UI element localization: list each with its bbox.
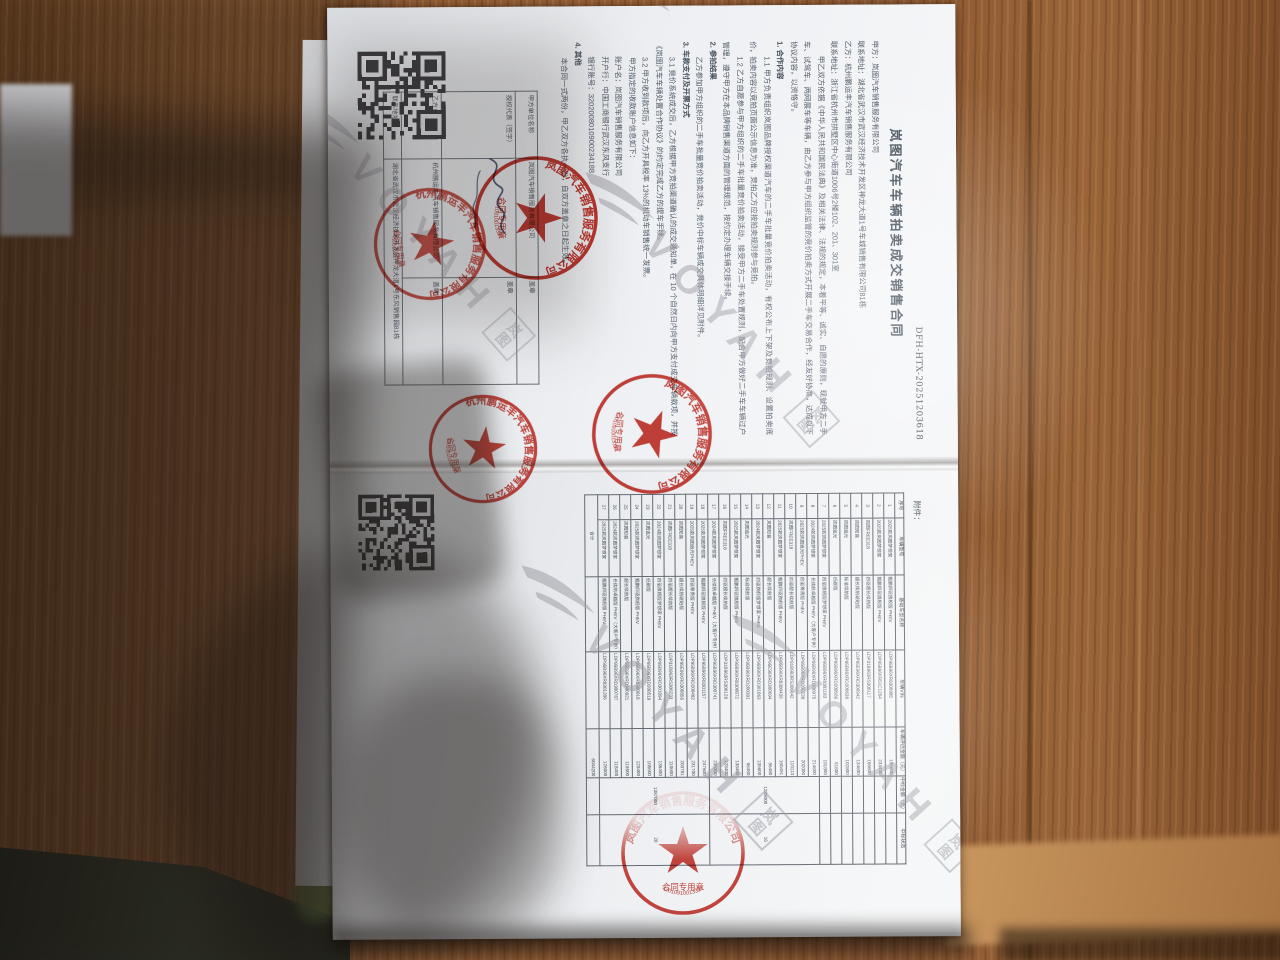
vehicle-cell: LDP31B963RS306128 xyxy=(720,651,731,728)
contract-paragraph: 乙方参加甲方组织的二手车批量竞价拍卖活动，竞价中标车辆成交具体明细详见附件。 xyxy=(692,42,708,436)
vehicle-cell: 鲲鹏四驱旗舰版 PHEV xyxy=(698,576,709,651)
seal-cell: 盖章 xyxy=(402,278,443,385)
vehicle-cell: 19 xyxy=(686,494,697,519)
vehicle-cell: 2024款岚图梦想家 xyxy=(609,520,620,577)
table-header: 车辆型号 xyxy=(895,518,904,575)
floor xyxy=(0,840,350,960)
vehicle-cell: 岚图追光 xyxy=(840,518,851,575)
vehicle-cell: LDP95B96XRD300741 xyxy=(709,651,720,728)
wood-plank-seam xyxy=(1028,0,1032,960)
vehicle-cell: 鲲鹏四驱旗舰版 PHEV xyxy=(885,575,896,650)
vehicle-cell: 2024款岚图梦想家 xyxy=(807,518,818,575)
empty-cell xyxy=(842,813,853,864)
empty-cell xyxy=(853,776,864,813)
vehicle-cell: 9 xyxy=(796,494,807,519)
vehicle-cell: 2025款岚图梦想家 xyxy=(631,520,642,577)
contract-number: DFH-HTX-20251203618 xyxy=(913,327,924,441)
total-cell: 6044200 xyxy=(587,729,600,778)
vehicle-cell: 1 xyxy=(884,493,895,518)
empty-cell xyxy=(820,776,831,813)
vehicle-cell: 岚图FREE318 xyxy=(664,519,675,576)
bid-amount-cell: 1387000 xyxy=(600,777,710,815)
vehicle-row: 5岚图追光标准续航版LDP95B96XRD200638102800 xyxy=(840,493,853,864)
vehicle-cell: 岚图知音 xyxy=(620,520,631,577)
empty-cell xyxy=(831,813,842,864)
vehicle-cell: 鲲鹏四驱旗舰版 PHEV xyxy=(874,575,885,650)
vehicle-cell: 长续航卓越版 PHEV（大客户专供） xyxy=(808,575,819,650)
vehicle-cell: 岚图FREE318 xyxy=(785,519,796,576)
page1-sheet: DFH-HTX-20251203618 岚图汽车车辆拍卖成交销售合同 甲方：岚图… xyxy=(327,4,958,466)
underlying-paper-corner xyxy=(0,84,72,236)
signature-label: 授权代表（签字） xyxy=(441,91,515,158)
total-cell xyxy=(587,815,600,866)
vehicle-cell: 2025款岚图梦想家 xyxy=(873,518,884,575)
vehicle-cell: 110113 xyxy=(787,728,798,777)
vehicle-cell: 2024款岚图梦想家 xyxy=(653,519,664,576)
contract-page-2: 附件： 序号车辆型号基础车型名称车辆VIN车辆评估金额（元）中标金额（元）中标状… xyxy=(330,466,961,936)
vehicle-cell: 四驱旗舰版梦想家 PHEV xyxy=(819,575,830,650)
vehicle-cell: 13 xyxy=(752,494,763,519)
vehicle-cell: 15 xyxy=(730,494,741,519)
vehicle-cell: 202000 xyxy=(798,727,809,776)
vehicle-cell: 低碳版 xyxy=(643,576,654,651)
vehicle-cell: 超长续航琥珀版 xyxy=(676,576,687,651)
vehicle-cell: 26 xyxy=(609,495,620,520)
vehicle-cell: 2025款岚图梦想家 xyxy=(774,519,785,576)
vehicle-cell: 2025款岚图梦想家 xyxy=(818,518,829,575)
vehicle-cell: 11 xyxy=(774,494,785,519)
vehicle-cell: 17 xyxy=(708,494,719,519)
table-header: 序号 xyxy=(895,493,904,518)
vehicle-cell: 10 xyxy=(785,494,796,519)
vehicle-cell: 118400 xyxy=(611,729,622,778)
vehicle-cell: 21 xyxy=(664,494,675,519)
vehicle-cell: 16 xyxy=(719,494,730,519)
vehicle-cell: 岚图追光 xyxy=(829,518,840,575)
contract-paragraph: 本合同一式两份，甲乙双方各执一份，自双方盖章之日起生效。 xyxy=(557,42,573,436)
vehicle-cell: 4 xyxy=(851,493,862,518)
vehicle-cell: LDP95B96XR8300985 xyxy=(885,650,896,727)
vehicle-cell: 7 xyxy=(818,493,829,518)
vehicle-cell: LDP95B96XR8300872 xyxy=(731,651,742,728)
contract-paper: DFH-HTX-20251203618 岚图汽车车辆拍卖成交销售合同 甲方：岚图… xyxy=(327,4,961,940)
left-edge-shadow xyxy=(0,108,373,960)
vehicle-cell: 160491 xyxy=(776,728,787,777)
empty-cell xyxy=(864,813,875,864)
signature-value: 岚图汽车销售服务有限公司 xyxy=(516,158,539,277)
vehicle-cell: 27 xyxy=(598,495,609,520)
vehicle-row: 6岚图追光低碳版LDP95B96XRD20056691800 xyxy=(829,493,842,864)
vehicle-cell: 2024款岚图梦想家 xyxy=(708,519,719,576)
total-cell xyxy=(587,778,600,815)
vehicle-row: 3岚图FREE318四驱超长续航版LDP31B963RS306117166600 xyxy=(862,493,875,864)
vehicle-cell: 8 xyxy=(807,493,818,518)
vehicle-cell: 23 xyxy=(642,494,653,519)
vehicle-cell: 24 xyxy=(631,495,642,520)
wood-plank-seam xyxy=(1138,0,1140,960)
vehicle-cell: 2025款岚图梦想家 xyxy=(730,519,741,576)
vehicle-cell: 214600 xyxy=(809,727,820,776)
vehicle-cell: 20 xyxy=(675,494,686,519)
vehicle-cell: 四驱旗舰版梦想家 PHEV xyxy=(654,576,665,651)
total-row: 合计6044200 xyxy=(585,495,600,866)
vehicle-cell: 129400 xyxy=(633,729,644,778)
vehicle-cell: 2024款岚图梦想家 xyxy=(752,519,763,576)
vehicle-row: 4岚图知音超长续航琥珀版LDP95E96XRD300942134600 xyxy=(851,493,864,864)
vehicle-cell: 岚图追光 xyxy=(741,519,752,576)
empty-cell xyxy=(831,776,842,813)
photo-scene: DFH-HTX-20251203618 岚图汽车车辆拍卖成交销售合同 甲方：岚图… xyxy=(0,0,1280,960)
vehicle-cell: 四驱尊贵版 PHEV xyxy=(687,576,698,651)
vehicle-cell: LDP95B96XR51C1264 xyxy=(874,650,885,727)
desk-edge-shadow xyxy=(1000,928,1280,960)
vehicle-cell: 四驱超长续航版 xyxy=(665,576,676,651)
contract-paragraph: 甲方：岚图汽车销售服务有限公司 xyxy=(868,41,884,435)
vehicle-cell: 岚图知音 xyxy=(851,518,862,575)
desk-edge-highlight xyxy=(943,834,1280,946)
vehicle-cell: 22 xyxy=(653,494,664,519)
qr-code xyxy=(358,494,434,570)
vehicle-cell: 标准续航版 xyxy=(841,575,852,650)
vehicle-cell: 5 xyxy=(840,493,851,518)
vehicle-cell: 2025款岚图梦想家 xyxy=(697,519,708,576)
vehicle-cell: 岚图FREE318 xyxy=(862,518,873,575)
attachment-label: 附件： xyxy=(911,500,922,524)
desk-corner-shade xyxy=(0,0,380,200)
empty-cell xyxy=(886,813,897,864)
handwritten-signature xyxy=(468,153,513,249)
vehicle-cell: 岚图知音 xyxy=(763,519,774,576)
vehicle-cell: 2025款岚图追光PHEV xyxy=(686,519,697,576)
vehicle-cell: 3 xyxy=(862,493,873,518)
vehicle-cell: 6 xyxy=(829,493,840,518)
table-header: 车辆VIN xyxy=(896,650,905,727)
vehicle-cell: 14 xyxy=(741,494,752,519)
vehicle-cell: 18 xyxy=(697,494,708,519)
vehicle-cell: 岚图FREE318 xyxy=(719,519,730,576)
page2-sheet: 附件： 序号车辆型号基础车型名称车辆VIN车辆评估金额（元）中标金额（元）中标状… xyxy=(330,466,961,936)
bid-status-cell: 20 xyxy=(600,814,710,866)
vehicle-cell: 2025款岚图梦想家 xyxy=(884,518,895,575)
vehicle-cell: LDP31B963RS306117 xyxy=(863,650,874,727)
vehicle-cell: 2025款岚图追光PHEV xyxy=(796,519,807,576)
table-header: 基础车型名称 xyxy=(896,575,905,650)
vehicle-cell: 25 xyxy=(620,495,631,520)
empty-cell xyxy=(842,776,853,813)
contract-paragraph: 乙方：杭州鹏运丰汽车销售服务有限公司 xyxy=(841,41,857,435)
vehicle-cell: 四驱尊贵版 PHEV xyxy=(797,576,808,651)
contract-title: 岚图汽车车辆拍卖成交销售合同 xyxy=(886,4,908,462)
vehicle-cell: 四驱超长续航版 xyxy=(863,575,874,650)
vehicle-cell: 长续航卓越版 PHEV（大客户专供） xyxy=(709,576,720,651)
empty-cell xyxy=(820,813,831,864)
empty-cell xyxy=(853,813,864,864)
contract-page-1: DFH-HTX-20251203618 岚图汽车车辆拍卖成交销售合同 甲方：岚图… xyxy=(327,4,958,466)
signature-label: 甲方单位名称 xyxy=(515,91,537,158)
contract-body: 甲方：岚图汽车销售服务有限公司联系地址：湖北省武汉市武汉经济技术开发区神龙大道1… xyxy=(557,41,883,437)
vehicle-cell: 低碳版 xyxy=(830,575,841,650)
vehicle-cell: 岚图追光 xyxy=(642,519,653,576)
contract-paragraph: 开户行：中国工商银行武汉东风支行 xyxy=(598,42,614,436)
vehicle-cell: 119800 xyxy=(622,729,633,778)
vehicle-cell: 135600 xyxy=(754,728,765,777)
vehicle-cell: 126000 xyxy=(600,729,611,778)
vehicle-row: 182025款岚图梦想家鲲鹏四驱旗舰版 PHEVLDP95B96XR830115… xyxy=(697,494,710,865)
empty-cell xyxy=(875,813,886,864)
vehicle-cell: 12 xyxy=(763,494,774,519)
vehicle-cell: 96480 xyxy=(765,728,776,777)
vehicle-cell: 2 xyxy=(873,493,884,518)
vehicle-cell: 岚图知音 xyxy=(675,519,686,576)
vehicle-cell: 鲲鹏四驱旗舰版 PHEV xyxy=(632,577,643,652)
vehicle-cell: 超长续航琥珀版 xyxy=(852,575,863,650)
vehicle-row: 22025款岚图梦想家鲲鹏四驱旗舰版 PHEVLDP95B96XR51C1264… xyxy=(873,493,886,864)
voyah-watermark xyxy=(611,4,689,29)
vehicle-cell: LDP95B96XRD200391 xyxy=(742,651,753,728)
vehicle-cell: 2025款岚图梦想家 xyxy=(598,520,609,577)
qr-code xyxy=(357,51,446,140)
